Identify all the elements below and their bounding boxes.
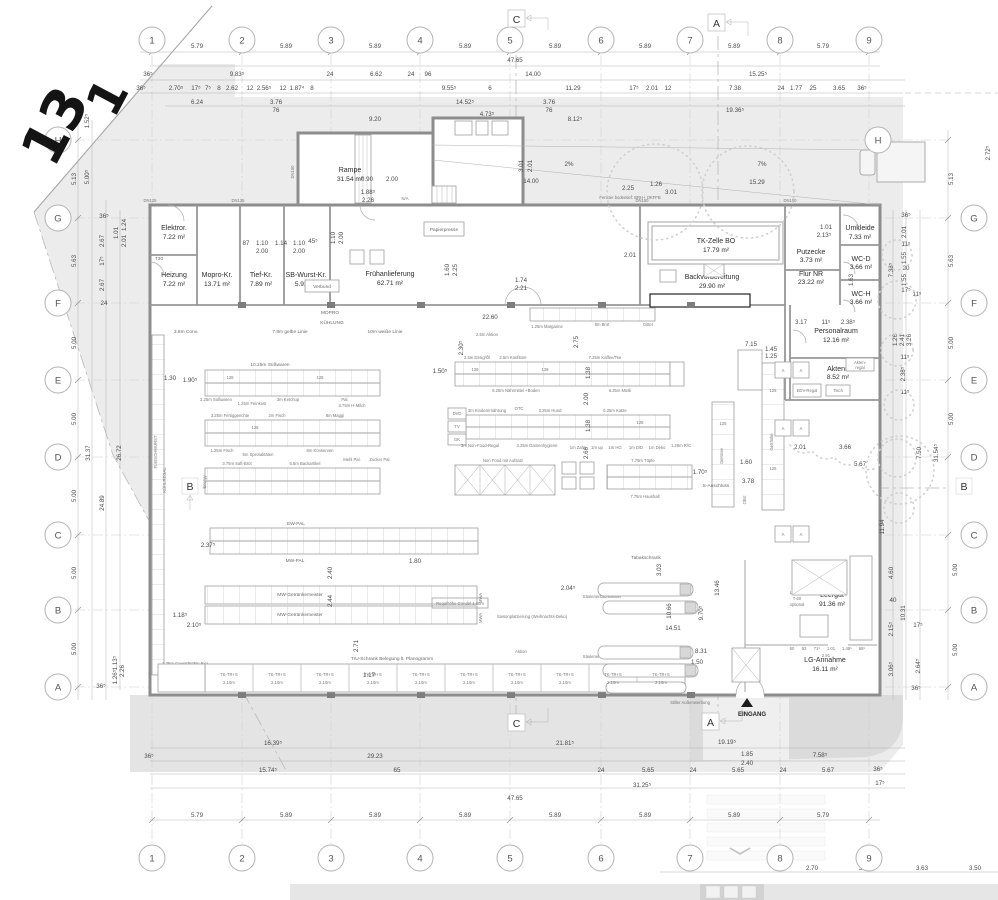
- dim-label: 8: [310, 85, 314, 92]
- tk-cell-label: 2.10m: [511, 680, 523, 685]
- aisle-label: 6.25m Katze: [603, 408, 627, 413]
- grid-row-label: E: [55, 376, 61, 387]
- leergut-optional-label: T-60: [793, 596, 802, 601]
- dim-label: 5.65: [642, 767, 655, 774]
- edv-regal-label: EDV-Regal: [797, 388, 818, 393]
- grid-col-label: 1: [149, 36, 154, 47]
- dim-label: 7.38: [729, 85, 742, 92]
- dim-label: 5.79: [191, 43, 204, 50]
- dim-label: 2.00: [583, 392, 590, 405]
- dim-label: 1.77: [790, 85, 803, 92]
- dim-label: 2.64⁵: [915, 658, 922, 673]
- dim-label: 36⁵: [136, 85, 146, 92]
- dim-label: 25: [810, 85, 817, 92]
- tk-cell-label: TK-TR+S: [508, 672, 526, 677]
- aisle-label: 1m HG: [608, 445, 621, 450]
- dim-label: 5.89: [369, 812, 382, 819]
- dim-label: 7%: [758, 161, 767, 168]
- dim-label: 2.62: [226, 85, 239, 92]
- dim-label: 1.85: [741, 751, 754, 758]
- dim-label: 14.51: [665, 625, 681, 632]
- dim-label: 2.21: [515, 285, 528, 292]
- aisle-label: 3.75m H-Milch: [339, 403, 367, 408]
- pallet-a: A: [800, 368, 803, 373]
- dim-label: 1.87⁴: [290, 85, 305, 92]
- grid-col-label: 2: [239, 854, 244, 865]
- grid-row-label: F: [55, 299, 61, 310]
- dim-label: 5.89: [639, 812, 652, 819]
- room-area-frueh: 62.71 m²: [377, 280, 404, 287]
- aisle-label: KÜHLUNG: [320, 319, 344, 326]
- dim-label: 17⁵: [191, 85, 201, 92]
- dim-label: 11⁵: [902, 241, 911, 248]
- grid-row-label: F: [971, 299, 977, 310]
- shelf-code: 128: [227, 375, 235, 380]
- room-name-wcd: WC-D: [851, 256, 870, 263]
- tk-cell-label: TK-TR+S: [268, 672, 286, 677]
- room-area-putzecke: 3.73 m²: [800, 257, 823, 264]
- room-name-tkzelle: TK-Zelle BO: [697, 238, 736, 245]
- dim-label: 14.52⁵: [456, 99, 474, 106]
- aisle-label: 7.75m Töpfe: [631, 458, 655, 463]
- dvd-label: DVD: [453, 411, 462, 416]
- dim-label: 2.04⁵: [561, 585, 576, 592]
- aisle-label: MOPRO: [321, 310, 339, 316]
- dim-label: 36⁵: [873, 766, 883, 773]
- dim-label: 2.38⁵: [900, 366, 907, 381]
- dim-label: 1.88⁵: [361, 189, 376, 196]
- dim-label: 15.29: [749, 179, 765, 186]
- dim-label: 2.70: [806, 865, 819, 872]
- dim-label: 2.67: [99, 234, 106, 247]
- dim-label: 11.94: [879, 519, 886, 535]
- dim-label: 5.67: [854, 461, 867, 468]
- grid-row-bubbles-left: H G F E D C B A: [45, 127, 71, 700]
- room-name-elektro: Elektror.: [161, 225, 187, 232]
- dim-label: 5.89: [549, 812, 562, 819]
- room-name-rampe: Rampe: [339, 167, 362, 174]
- room-name-mopro: Mopro-Kr.: [202, 272, 233, 279]
- dim-label: 40: [890, 597, 897, 604]
- dim-label: 7.58⁵: [813, 752, 828, 759]
- tk-cell-label: 2.10m: [223, 680, 235, 685]
- room-area-tkzelle: 17.79 m²: [703, 247, 730, 254]
- grid-row-label: D: [55, 453, 62, 464]
- dim-label: 31.37: [85, 445, 92, 461]
- dim-label: 1.26: [650, 181, 663, 188]
- dim-label: 1.13⁵: [112, 655, 119, 670]
- dim-label: 5.00: [71, 642, 78, 655]
- dim-label: 7.15: [745, 341, 758, 348]
- section-marker-c-bottom: C: [513, 718, 521, 730]
- aisle-label: 8m Konserven: [307, 448, 335, 453]
- mwa-label: MWA: [478, 593, 483, 603]
- dim-label: 24: [327, 71, 334, 78]
- dim-label: 19.19⁵: [718, 739, 736, 746]
- room-area-lg: 16.11 m²: [812, 666, 838, 673]
- room-area-wch: 3.66 m²: [850, 299, 873, 306]
- dim-label: 8: [217, 85, 221, 92]
- entrance-label: EINGANG: [738, 712, 766, 718]
- dim-label: 5.89: [459, 43, 472, 50]
- dim-label: 5.79: [817, 43, 830, 50]
- aisle-label: 3.25m Fertiggerichte: [211, 413, 250, 418]
- dim-label: 2.01: [624, 252, 637, 259]
- shelf-code: 128: [637, 420, 645, 425]
- dim-label: 60: [790, 646, 795, 651]
- room-name-lg: LG-Annahme: [804, 657, 846, 664]
- room-area-elektro: 7.22 m²: [163, 234, 186, 241]
- leergut-optional-label: optional: [790, 602, 805, 607]
- dim-label: 3.78: [742, 478, 755, 485]
- dim-label: 1.26: [892, 333, 899, 346]
- dim-label: 3.06⁵: [888, 661, 895, 676]
- dim-label: 1.14: [275, 240, 288, 247]
- tv-label: TV: [454, 424, 460, 429]
- grid-row-label: A: [55, 683, 62, 694]
- dim-label: 2.70⁵: [169, 85, 184, 92]
- aisle-label: MW-Getränkemeister: [277, 612, 323, 618]
- dim-label: 68⁵: [859, 646, 866, 651]
- dim-label: 5.00⁵: [84, 169, 91, 184]
- tk-cell-label: TK-TR+S: [220, 672, 238, 677]
- dim-label: 1.10: [256, 240, 269, 247]
- tk-cell-label: TK-TR+S: [412, 672, 430, 677]
- dim-label: 5.00: [948, 412, 955, 425]
- aisle-label: 2m Fisch: [269, 413, 287, 418]
- dim-label: 17⁵: [913, 622, 923, 629]
- dim-label: 3.03: [656, 563, 663, 576]
- section-marker-a-top: A: [713, 18, 720, 30]
- dim-label: 76: [273, 107, 280, 114]
- outdoor-note: Stiller Außenwerbung: [670, 700, 710, 705]
- dn125-label: DN125: [143, 198, 157, 203]
- washbasins: [455, 121, 508, 135]
- dim-label: 1.60: [444, 263, 451, 276]
- aisle-label: 1m D/D: [629, 445, 643, 450]
- aisle-label: 3m Ketchup: [277, 397, 300, 402]
- tk-cell-label: TK-TR+S: [652, 672, 670, 677]
- pallet-a: A: [800, 532, 803, 537]
- dim-label: 17⁵: [875, 780, 885, 787]
- dim-label: 5.13: [948, 172, 955, 185]
- dim-label: 1.80: [409, 558, 422, 565]
- verbund-label: Verbund: [313, 284, 331, 290]
- tk-cell-label: TK-TR+S: [460, 672, 478, 677]
- shelf-code: 128: [317, 375, 325, 380]
- dim-label: 11.29: [565, 85, 581, 92]
- shelf-code: 128: [252, 425, 260, 430]
- shelf-code: 128: [472, 367, 480, 372]
- dim-label: 1.70⁵: [693, 469, 708, 476]
- dim-label: 9.20: [369, 116, 382, 123]
- grid-col-label: 9: [866, 854, 871, 865]
- dim-label: 5.89: [639, 43, 652, 50]
- dim-label: 1.48⁵: [842, 646, 852, 651]
- gk-label: GK: [454, 437, 460, 442]
- dim-label: 2.15⁵: [888, 621, 895, 636]
- dim-label: 15.25⁵: [749, 71, 767, 78]
- dim-label: 87: [243, 240, 250, 247]
- dim-label: 3.76: [270, 99, 283, 106]
- room-area-rampe: 31.54 m²: [337, 176, 364, 183]
- dim-label: 2.01: [794, 444, 807, 451]
- aisle-label: 3m Non-Food-Regal: [461, 443, 499, 448]
- dim-label: 3.01: [518, 159, 525, 172]
- dim-label: 1.50⁵: [433, 368, 448, 375]
- dim-label: 36⁵: [143, 71, 153, 78]
- tk-cell-label: 2.10m: [463, 680, 475, 685]
- dim-label: 1.25: [765, 353, 778, 360]
- dim-label: 5.13: [71, 172, 78, 185]
- aisle-label: 8m Maggi: [326, 413, 344, 418]
- dim-label: 24: [780, 767, 787, 774]
- room-area-wcd: 3.66 m²: [850, 264, 873, 271]
- dim-label: 2.37⁵: [201, 542, 216, 549]
- t30-label: T30: [155, 256, 164, 262]
- pallet-a: A: [782, 426, 785, 431]
- dim-label: 3.01: [665, 189, 678, 196]
- dim-label: 2.67: [99, 278, 106, 291]
- dim-label: 5.00: [948, 336, 955, 349]
- dim-label: 2.72⁵: [985, 145, 992, 160]
- dim-label: 12: [280, 85, 287, 92]
- dim-label: 96: [425, 71, 432, 78]
- dn125-label: DN125: [231, 198, 245, 203]
- aisle-label: 6.25m Müsli: [609, 388, 632, 393]
- tk-cell-label: 2.10m: [319, 680, 331, 685]
- dim-label: 76: [546, 107, 553, 114]
- dim-label: 3.63: [916, 865, 929, 872]
- shelf-code: 125: [770, 388, 778, 393]
- grid-col-label: 1: [149, 854, 154, 865]
- room-area-personal: 12.16 m²: [823, 337, 850, 344]
- dim-label: 8.31: [695, 648, 708, 655]
- dim-label: 2.91: [822, 653, 831, 658]
- dim-label: 2.71: [353, 639, 360, 652]
- dim-label: 2.01: [527, 159, 534, 172]
- dim-label: 14.00: [525, 71, 541, 78]
- grid-col-label: 6: [598, 854, 603, 865]
- section-marker-c-top: C: [513, 14, 521, 26]
- papierpresse-label: Papierpresse: [430, 227, 459, 233]
- dim-label: 11⁵: [822, 319, 831, 326]
- aisle-label: MW-Getränkemeister: [277, 592, 323, 598]
- dim-label: 24: [690, 767, 697, 774]
- dim-label: 5.00: [71, 336, 78, 349]
- grid-col-label: 4: [417, 854, 422, 865]
- pallet-a: A: [782, 532, 785, 537]
- dim-label: 2.44: [327, 594, 334, 607]
- grid-row-label: C: [971, 531, 978, 542]
- dim-label: 5.63: [71, 254, 78, 267]
- tisch-label: Tisch: [833, 388, 844, 393]
- grid-col-label: 3: [328, 854, 333, 865]
- room-name-putzecke: Putzecke: [797, 249, 826, 256]
- shelf-code: 125: [770, 466, 778, 471]
- dim-label: 14.00: [523, 178, 539, 185]
- dim-label: 2.01: [121, 234, 128, 247]
- tk-cell-label: 2.10m: [559, 680, 571, 685]
- dim-label: 71⁵: [814, 646, 821, 651]
- dim-label: 6.62: [370, 71, 383, 78]
- dim-label: 5.00: [71, 566, 78, 579]
- dim-label: 5.89: [280, 43, 293, 50]
- room-area-leergut: 91.36 m²: [819, 601, 846, 608]
- dim-label: 2.01: [646, 85, 659, 92]
- dim-label: 47.65: [507, 57, 523, 64]
- dim-label: 2.01: [901, 225, 908, 238]
- dim-label: 5.89: [369, 43, 382, 50]
- dim-label: 2.56⁵: [257, 85, 272, 92]
- crosswalk: [706, 795, 825, 898]
- dim-label: 3.76: [543, 99, 556, 106]
- dim-label: 5.63: [948, 254, 955, 267]
- pallet-a: A: [782, 368, 785, 373]
- dim-label: 1.60: [740, 459, 753, 466]
- room-area-heizung: 7.22 m²: [163, 281, 186, 288]
- room-name-frueh: Frühanlieferung: [365, 271, 414, 278]
- dim-label: 65: [394, 767, 401, 774]
- aisle-label: 3.25m Hund: [539, 408, 562, 413]
- tk-cell-label: 2.10m: [655, 680, 667, 685]
- dim-label: 1.10: [330, 231, 337, 244]
- dim-label: 5.00: [952, 643, 959, 656]
- aisle-label: 7.25m Kaffee/Tee: [589, 355, 622, 360]
- mwa-label: MWA: [478, 613, 483, 623]
- dim-label: 2.26: [119, 664, 126, 677]
- dim-label: 2.00: [338, 231, 345, 244]
- grid-col-label: 3: [328, 36, 333, 47]
- tru-label: TrU-Schrank Belegung lt. Planogramm: [351, 656, 433, 662]
- dim-label: 36⁵: [96, 683, 106, 690]
- grid-col-label: 2: [239, 36, 244, 47]
- shelf-code: 128: [542, 367, 550, 372]
- aisle-label: 3.75m Saft-Brot: [222, 461, 252, 466]
- dim-label: 1.63: [848, 273, 855, 286]
- dim-label: 24.89: [99, 495, 106, 511]
- dim-label: 5.89: [728, 43, 741, 50]
- grid-col-label: 5: [507, 854, 512, 865]
- dim-label: 5.67: [822, 767, 835, 774]
- dim-label: 21.81⁵: [556, 740, 574, 747]
- grid-row-label: A: [971, 683, 978, 694]
- room-name-heizung: Heizung: [161, 272, 187, 279]
- dim-label: 2.40: [741, 760, 754, 767]
- aisle-label: 7.8m gelbe Linie: [272, 329, 308, 335]
- dim-label: 6: [488, 85, 492, 92]
- aisle-label: 7.75m Haushalt: [630, 494, 660, 499]
- aisle-label: 8m Brot: [595, 322, 610, 327]
- room-name-wch: WC-H: [851, 291, 870, 298]
- dim-label: 1.90⁵: [183, 377, 198, 384]
- grid-row-label: B: [971, 606, 977, 617]
- room-area-tief: 7.89 m²: [250, 281, 273, 288]
- aisle-label: Zucker Pal.: [369, 457, 390, 462]
- aktion-label: Aktion: [515, 649, 527, 654]
- aisle-label: 1m up: [591, 445, 603, 450]
- dim-label: 10.31: [900, 605, 907, 621]
- aisle-label: EW-PAL: [287, 521, 305, 527]
- aisle-label: OTC: [515, 406, 524, 411]
- dim-label: 2.13⁵: [817, 232, 832, 239]
- room-name-umkleide: Umkleide: [845, 225, 874, 232]
- dim-label: 1.38: [585, 419, 592, 432]
- dim-label: 2%: [565, 161, 574, 168]
- dn150-label: DN150: [783, 198, 797, 203]
- aisle-label: 1.25m Fisch: [211, 448, 234, 453]
- dim-label: 17⁵: [901, 287, 911, 294]
- dim-label: 5.79: [817, 812, 830, 819]
- fenster-note: Fenster bodentief: BRH+ OKFFB: [599, 195, 661, 200]
- dim-label: 2.00: [386, 176, 399, 183]
- dim-label: 4.60: [888, 566, 895, 579]
- grid-row-label: G: [970, 214, 977, 225]
- dim-label: 3.17: [795, 319, 808, 326]
- room-area-flur: 23.22 m²: [798, 279, 825, 286]
- dim-label: 5.89: [459, 812, 472, 819]
- grid-row-label: D: [971, 453, 978, 464]
- room-name-flur: Flur NR: [799, 271, 823, 278]
- grid-row-label: C: [55, 531, 62, 542]
- dim-label: 19.36⁵: [726, 107, 744, 114]
- aisle-label: 1.25m Feinkost: [238, 401, 267, 406]
- na-label: N/A: [402, 196, 409, 201]
- section-marker-b-right: B: [960, 481, 967, 493]
- dim-label: 26.72: [116, 445, 123, 461]
- dim-label: 1.01: [113, 226, 120, 239]
- aisle-label: 2.5m Aktion: [476, 332, 499, 337]
- dim-label: 1.50: [691, 659, 704, 666]
- dim-label: 12: [665, 85, 672, 92]
- dim-label: 5.89: [549, 43, 562, 50]
- dim-label: 22.60: [482, 314, 498, 321]
- dim-label: 10.66: [666, 603, 673, 619]
- room-name-sbwurst: SB-Wurst-Kr.: [286, 272, 327, 279]
- dim-label: 3.65: [833, 85, 846, 92]
- grid-row-label: G: [54, 214, 61, 225]
- dim-label: 7⁵: [205, 85, 211, 92]
- aisle-label: Non Food mit Aufsatz: [483, 458, 523, 463]
- dim-label: 13.46: [714, 580, 721, 596]
- dim-label: 5.89: [280, 812, 293, 819]
- dim-label: 12: [247, 85, 254, 92]
- grid-col-bubbles-bottom: 1 2 3 4 5 6 7 8 9: [139, 845, 882, 871]
- dim-label: 2.40: [327, 566, 334, 579]
- grid-row-label: B: [55, 606, 61, 617]
- aisle-label: 2.5m Konfitüre: [499, 355, 527, 360]
- aisle-label: 2.5m Essig/Öl: [464, 355, 490, 360]
- dim-label: 3.50: [969, 865, 982, 872]
- dim-label: 1.18⁵: [173, 612, 188, 619]
- dim-label: 0.90: [361, 176, 374, 183]
- aisle-label: 6.5m Backartikel: [290, 461, 321, 466]
- dim-label: 1.17: [363, 672, 376, 679]
- tk-cell-label: 2.10m: [415, 680, 427, 685]
- dim-label: 5.00: [71, 489, 78, 502]
- dim-label: 93: [802, 646, 807, 651]
- room-area-akten: 8.52 m²: [827, 374, 850, 381]
- dim-label: 2.38⁵: [841, 319, 856, 326]
- dim-label: 1.01: [827, 646, 836, 651]
- grid-row-label: E: [971, 376, 977, 387]
- dim-label: 1.26⁵: [112, 669, 119, 684]
- dim-label: 45⁵: [308, 238, 318, 245]
- dim-label: 2.75: [573, 335, 580, 348]
- aisle-label: 6.25m Nährmittel +Boden: [492, 388, 540, 393]
- dim-label: 5.79: [191, 812, 204, 819]
- dim-label: 9.70⁵: [698, 605, 705, 620]
